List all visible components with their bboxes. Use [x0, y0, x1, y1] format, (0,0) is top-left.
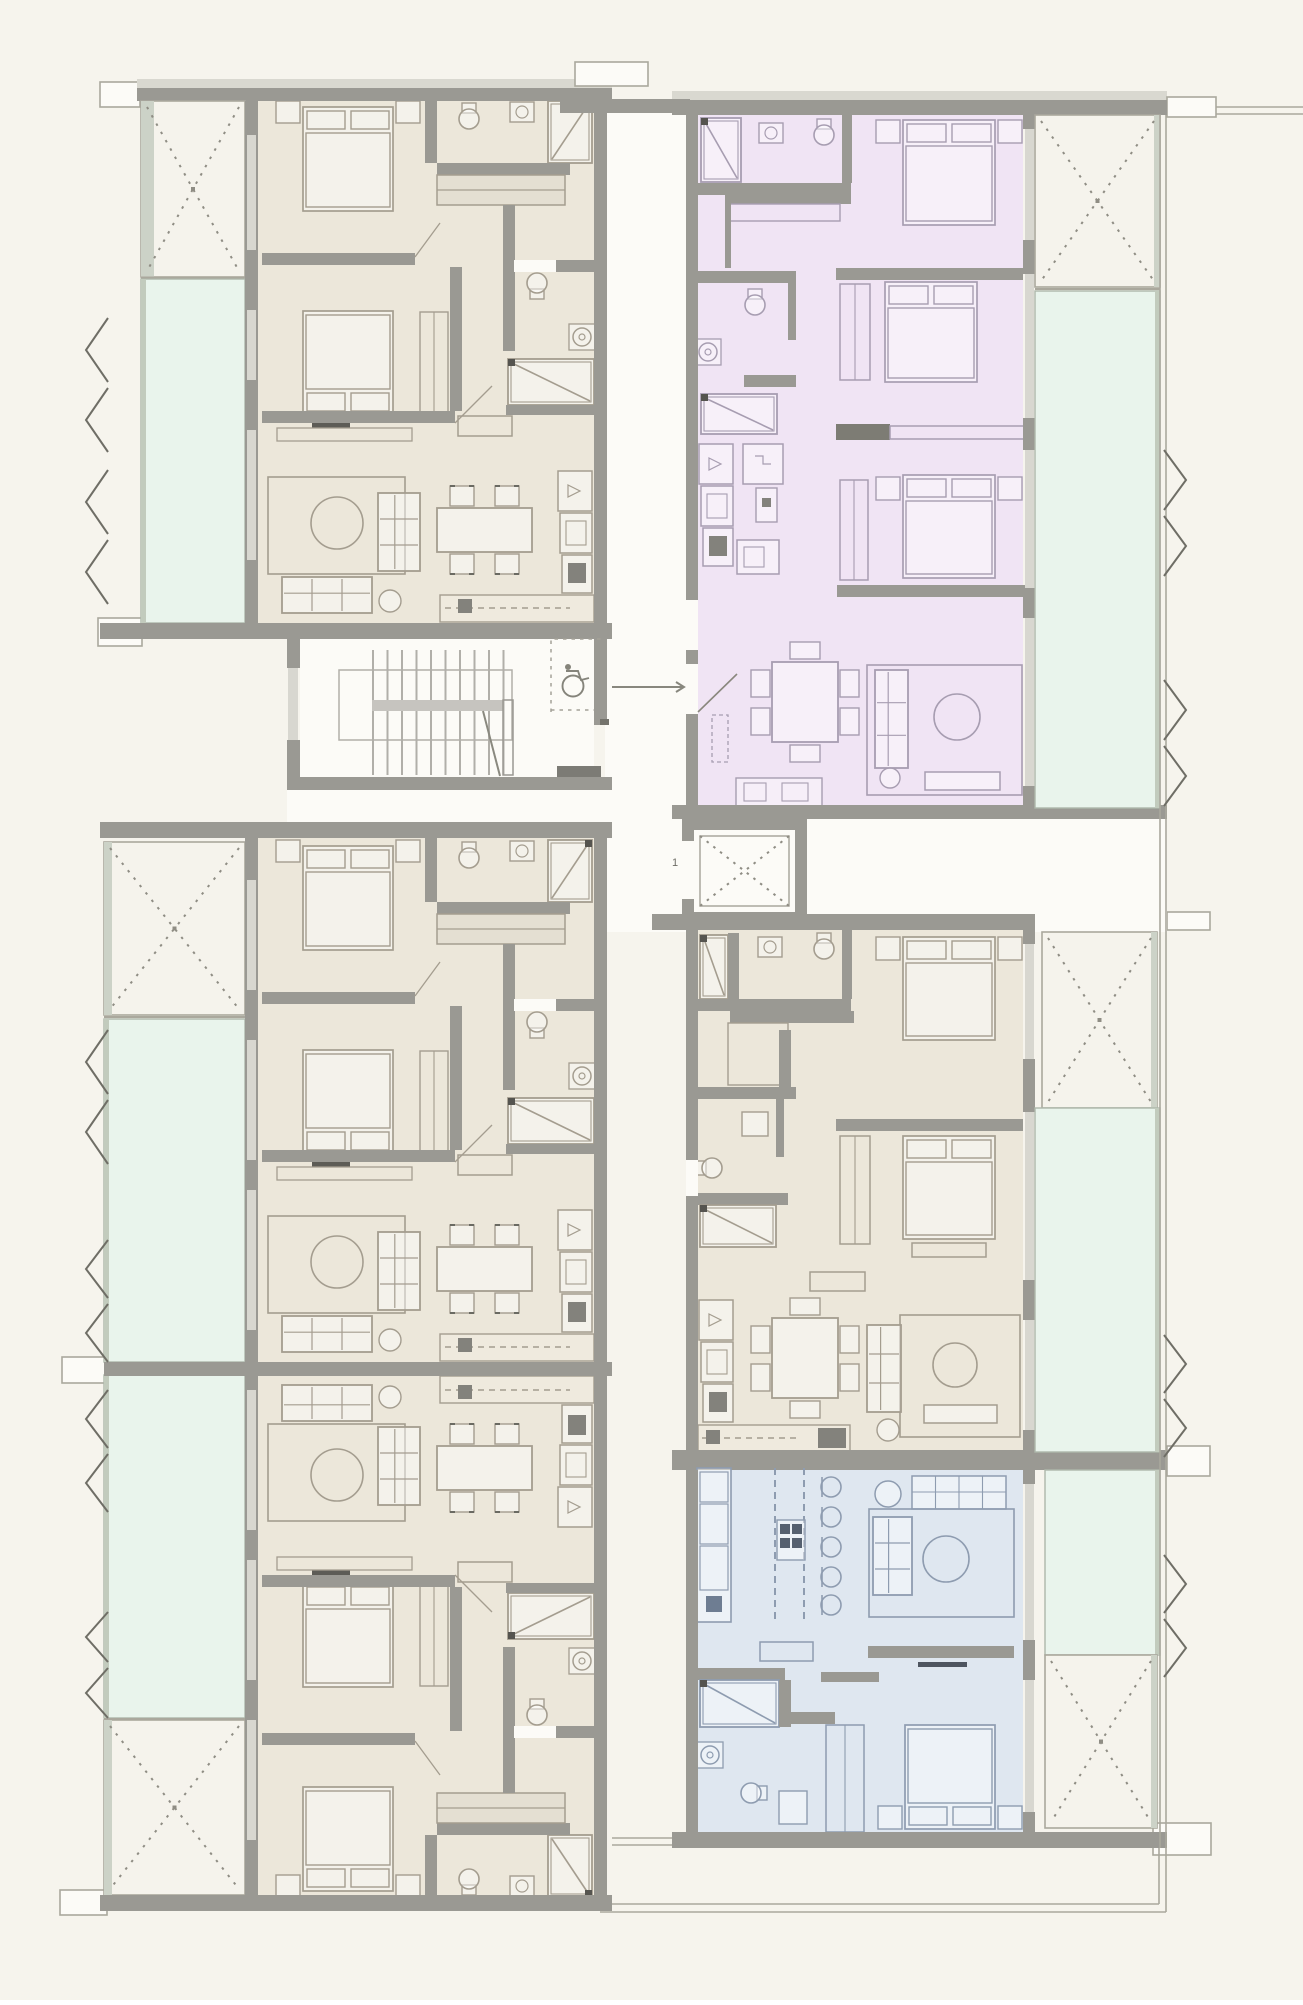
svg-text:1: 1 [672, 857, 678, 869]
